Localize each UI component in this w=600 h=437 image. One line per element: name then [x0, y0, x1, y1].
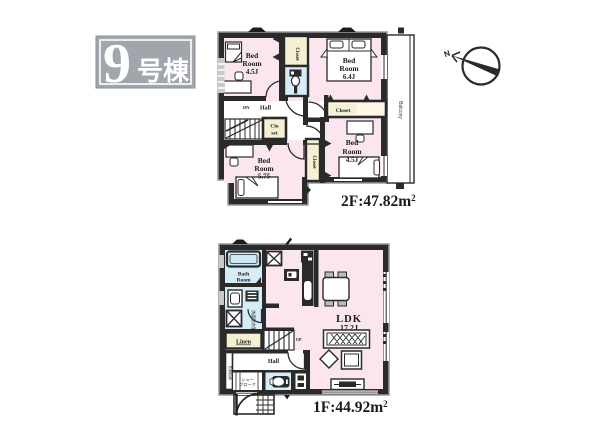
svg-text:4.5J: 4.5J: [346, 156, 359, 164]
svg-text:Closet: Closet: [294, 47, 299, 61]
svg-text:2F:47.82m2: 2F:47.82m2: [341, 193, 416, 210]
svg-text:9: 9: [103, 33, 131, 95]
svg-text:6.4J: 6.4J: [343, 73, 356, 81]
svg-text:N: N: [443, 49, 452, 60]
svg-text:Closet: Closet: [311, 155, 316, 169]
svg-text:Hall: Hall: [260, 106, 271, 112]
svg-text:Clo: Clo: [270, 124, 279, 130]
svg-text:Closet: Closet: [336, 108, 351, 114]
svg-text:号棟: 号棟: [137, 56, 190, 86]
svg-text:UP: UP: [296, 337, 302, 342]
svg-text:4.5J: 4.5J: [246, 68, 259, 76]
svg-text:Room: Room: [236, 278, 250, 284]
svg-text:Linen: Linen: [236, 340, 252, 346]
svg-text:玄関収納: 玄関収納: [228, 366, 233, 381]
svg-text:Room: Room: [339, 64, 359, 73]
svg-text:5.75: 5.75: [258, 173, 271, 181]
svg-text:DN: DN: [243, 105, 250, 110]
svg-text:set: set: [271, 131, 278, 137]
svg-text:Room: Room: [342, 147, 362, 156]
svg-text:Hall: Hall: [268, 359, 279, 365]
svg-text:1F:44.92m2: 1F:44.92m2: [313, 399, 388, 416]
svg-text:Bed: Bed: [346, 138, 359, 147]
svg-text:Room: Room: [242, 59, 262, 68]
svg-text:Balcony: Balcony: [397, 101, 403, 119]
